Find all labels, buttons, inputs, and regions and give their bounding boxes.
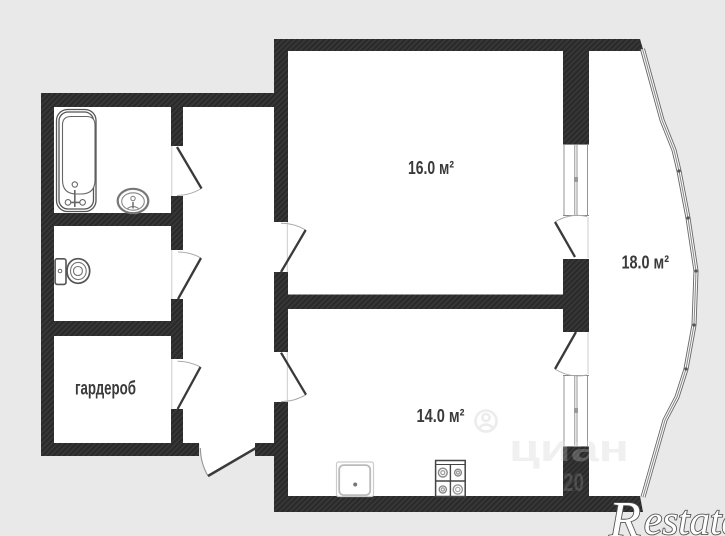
svg-text:20: 20 bbox=[563, 469, 584, 497]
svg-text:estate: estate bbox=[644, 497, 725, 536]
svg-text:16.0 м²: 16.0 м² bbox=[408, 157, 454, 178]
svg-text:14.0 м²: 14.0 м² bbox=[417, 405, 465, 426]
svg-text:R: R bbox=[608, 492, 641, 536]
svg-text:18.0 м²: 18.0 м² bbox=[622, 252, 670, 273]
svg-text:гардероб: гардероб bbox=[75, 379, 136, 400]
